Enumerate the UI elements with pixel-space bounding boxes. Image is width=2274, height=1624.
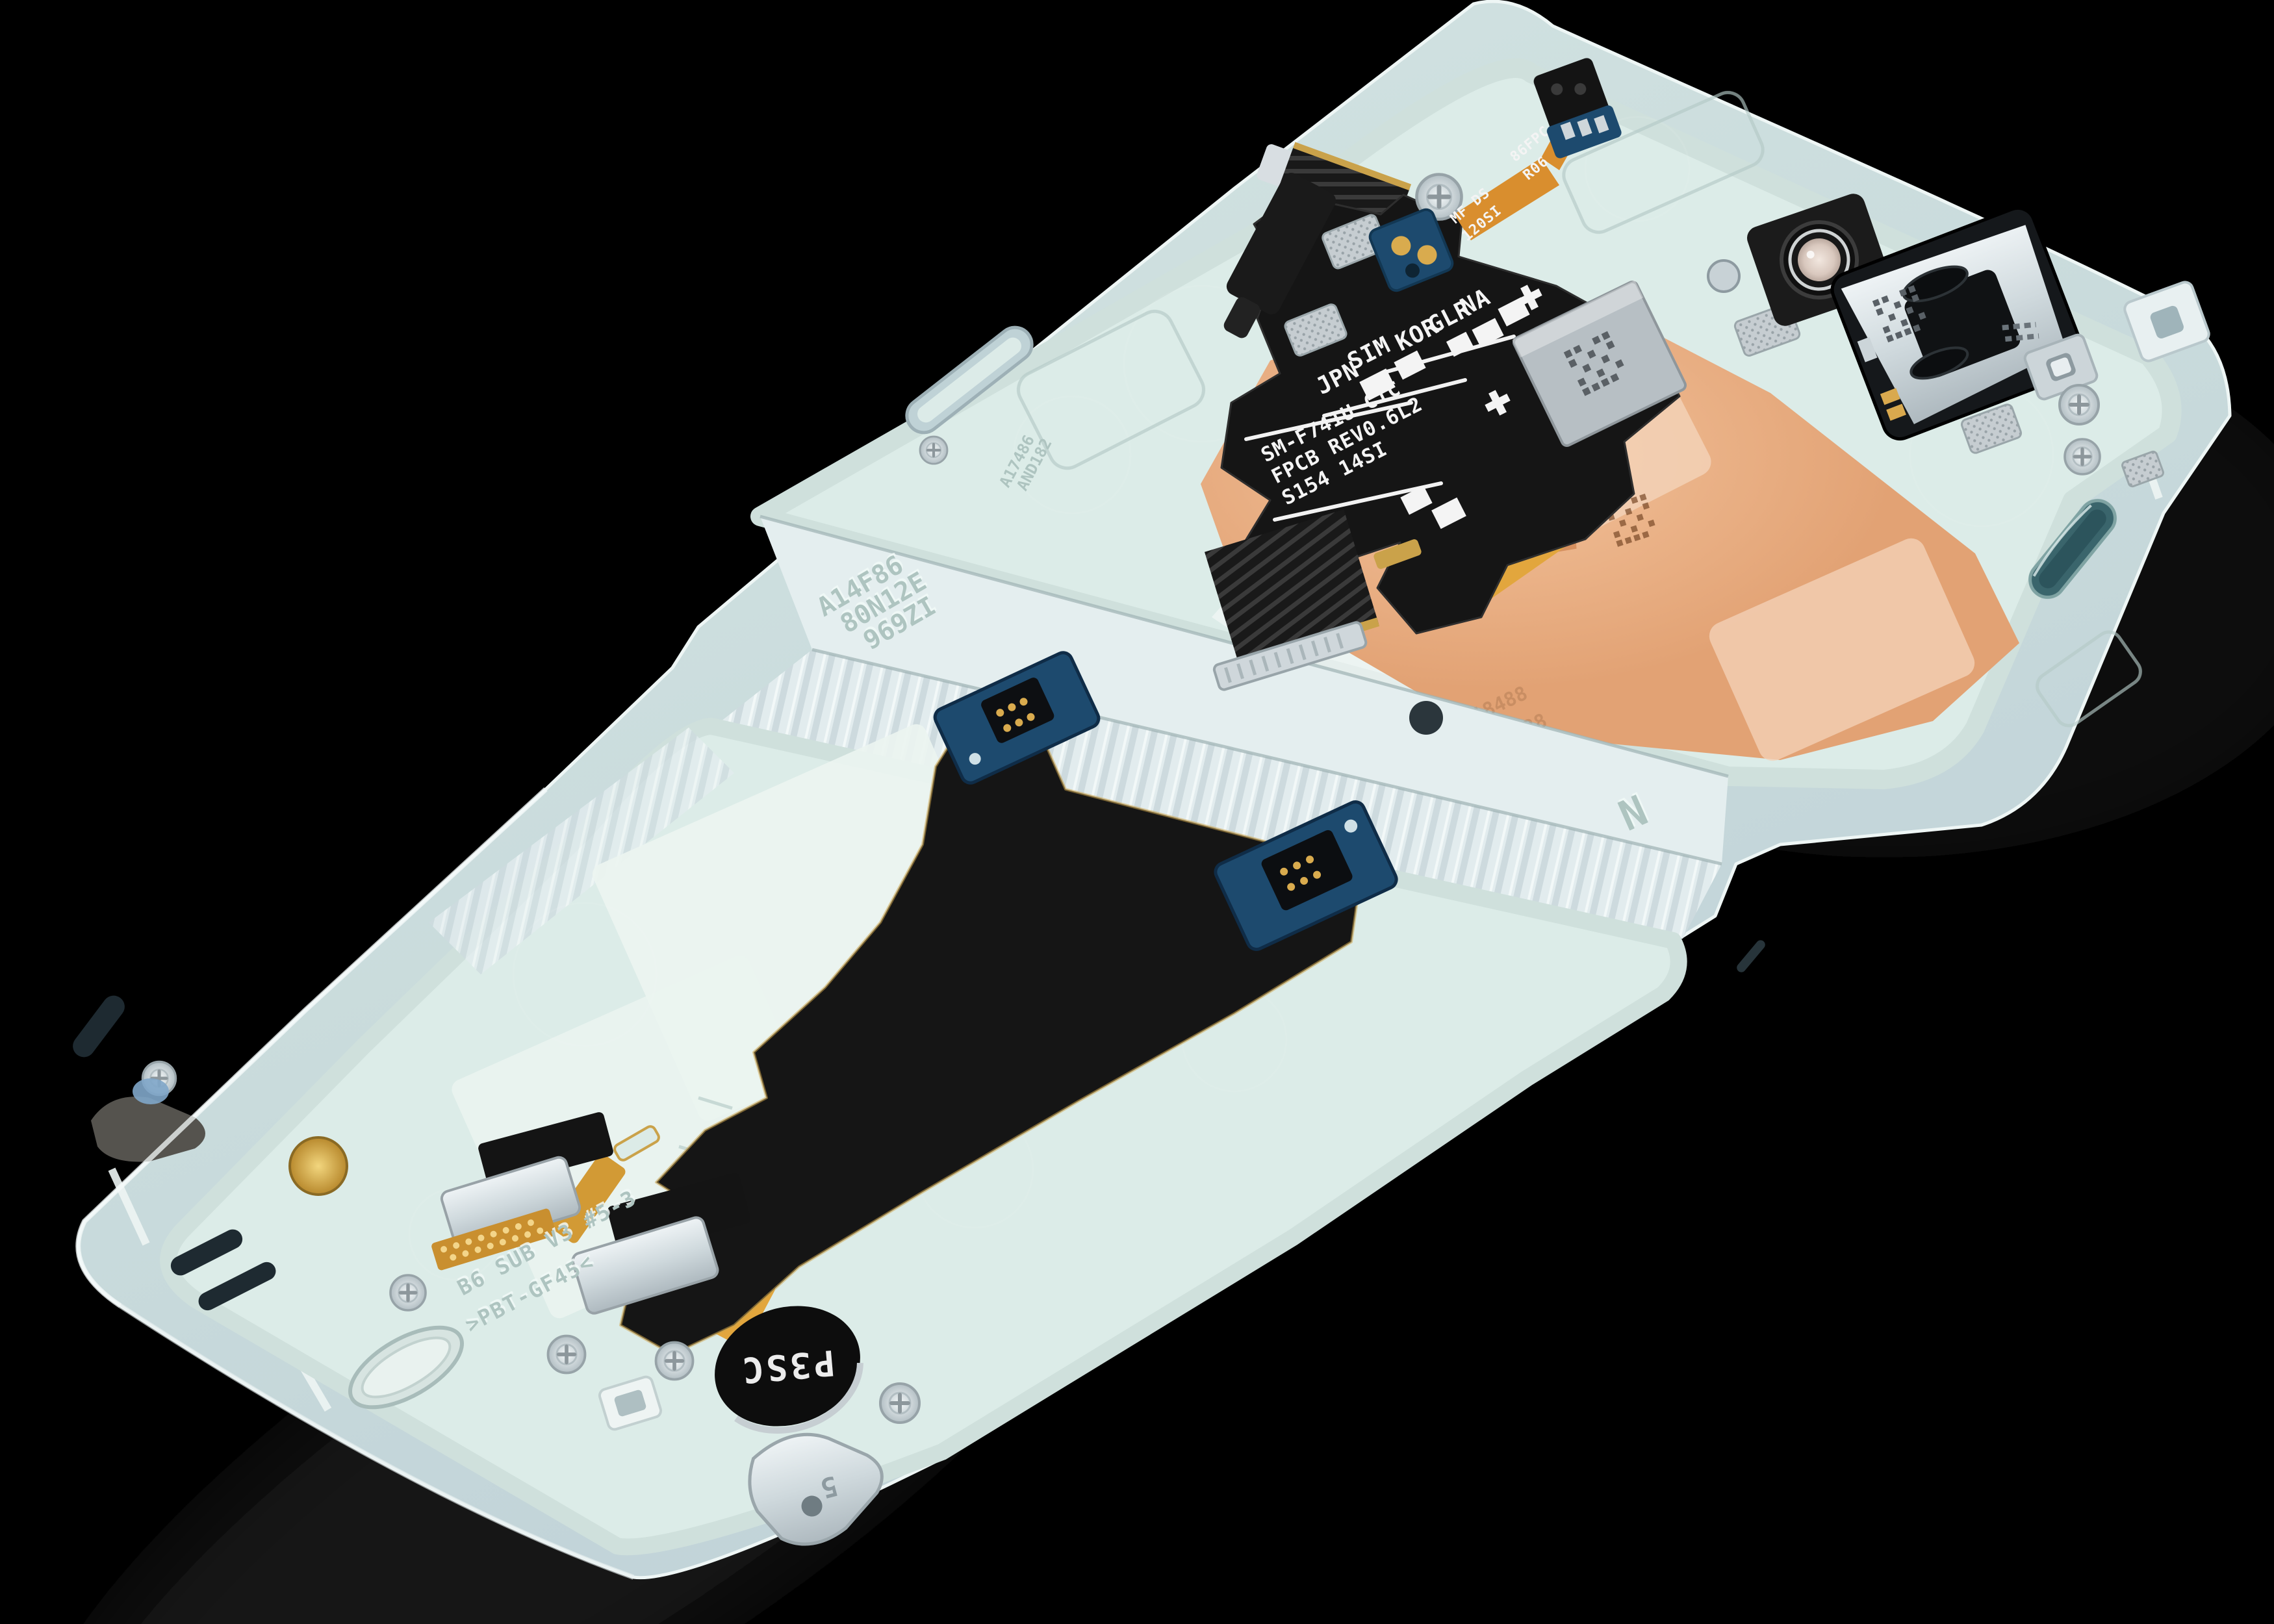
svg-text:P3SC: P3SC xyxy=(739,1342,837,1391)
screw xyxy=(656,1343,693,1380)
screw xyxy=(2060,385,2099,424)
adhesive-blob xyxy=(133,1078,169,1104)
screw xyxy=(920,437,947,464)
photo-stage: T18488 XSH228 A14F86 A14F86 80N12E 80N12… xyxy=(0,0,2274,1624)
screw xyxy=(390,1275,426,1310)
screw-post xyxy=(1708,260,1739,292)
coil-contact-disc xyxy=(290,1137,347,1195)
screw xyxy=(2065,439,2100,474)
product-photo-phone-internals: T18488 XSH228 A14F86 A14F86 80N12E 80N12… xyxy=(0,0,2274,1624)
hinge-hole xyxy=(1409,701,1443,735)
screw xyxy=(548,1336,585,1373)
screw xyxy=(880,1384,919,1423)
